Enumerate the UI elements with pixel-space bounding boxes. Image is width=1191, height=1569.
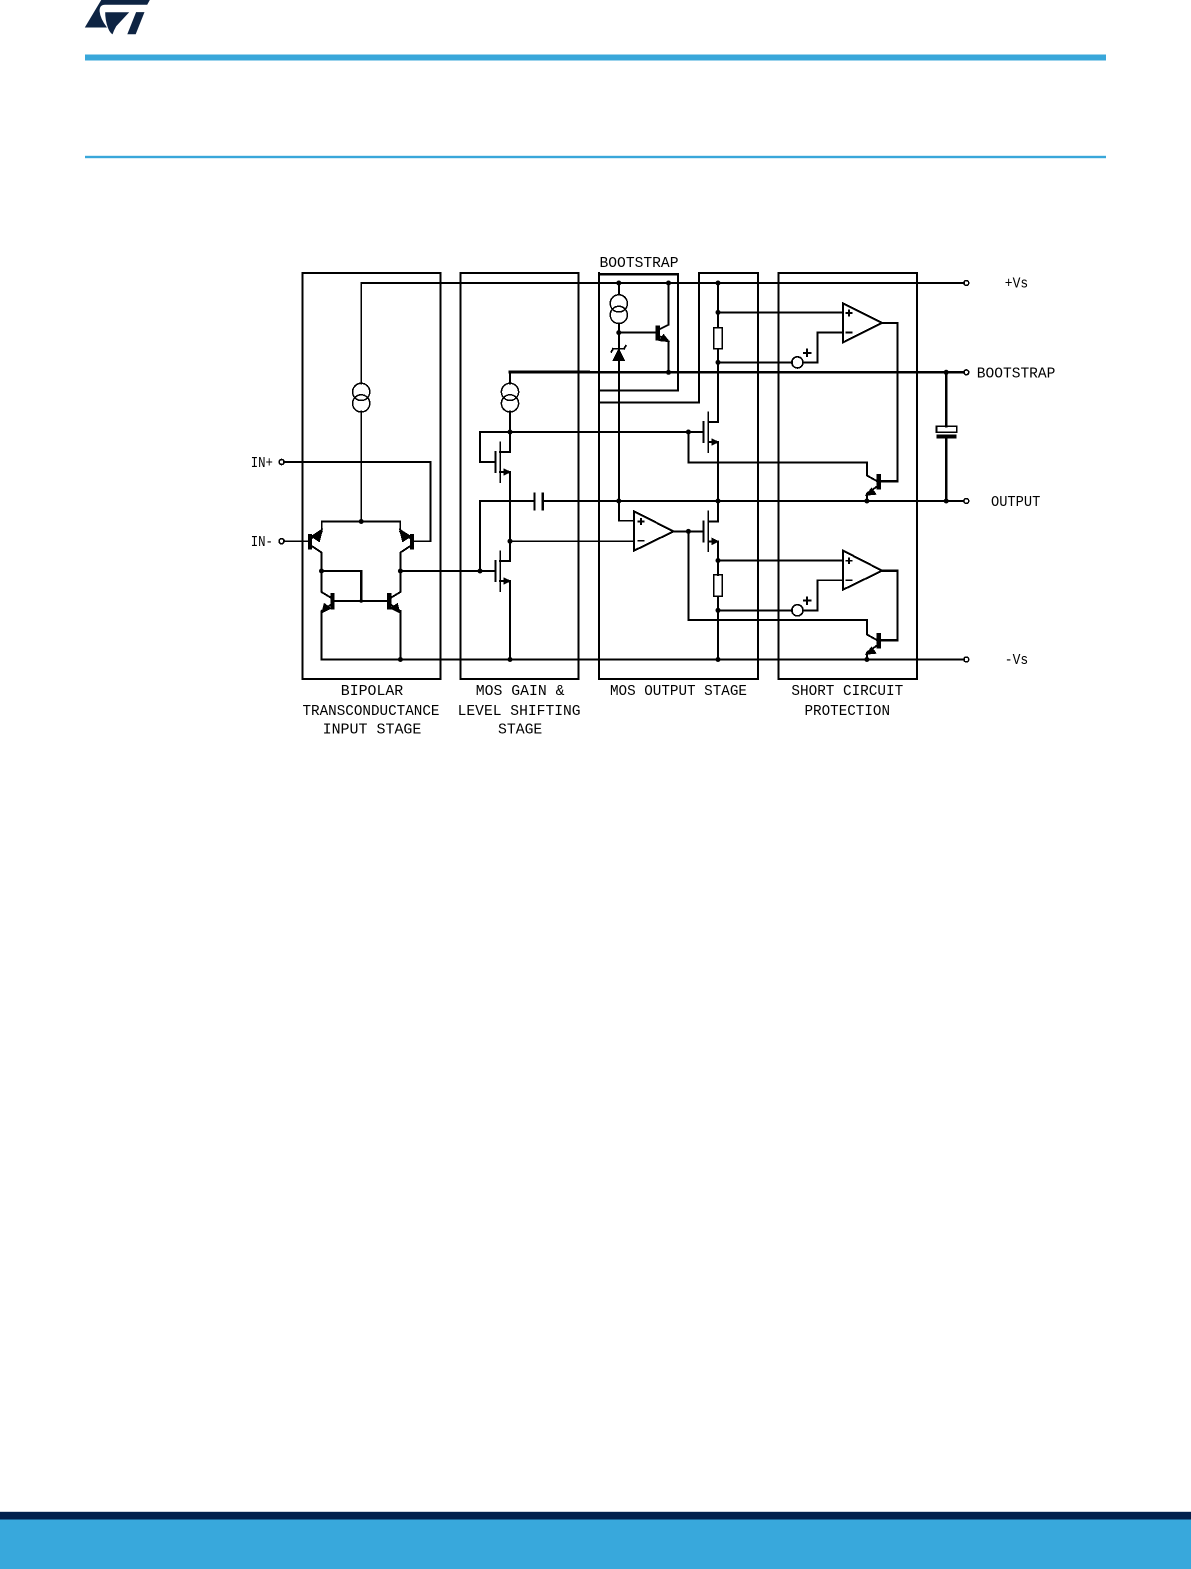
svg-text:BIPOLAR: BIPOLAR	[341, 684, 404, 700]
svg-text:IN+: IN+	[251, 456, 273, 472]
svg-text:PROTECTION: PROTECTION	[805, 704, 891, 720]
svg-text:-Vs: -Vs	[1005, 653, 1028, 669]
svg-text:INPUT STAGE: INPUT STAGE	[323, 723, 422, 739]
svg-text:BOOTSTRAP: BOOTSTRAP	[600, 256, 679, 272]
svg-text:OUTPUT: OUTPUT	[991, 495, 1041, 511]
svg-text:STAGE: STAGE	[498, 723, 542, 739]
svg-text:+Vs: +Vs	[1005, 277, 1028, 293]
svg-text:BOOTSTRAP: BOOTSTRAP	[977, 367, 1056, 383]
svg-text:LEVEL SHIFTING: LEVEL SHIFTING	[458, 704, 581, 720]
svg-text:SHORT CIRCUIT: SHORT CIRCUIT	[791, 684, 903, 700]
svg-text:IN-: IN-	[251, 535, 273, 551]
svg-text:MOS GAIN &: MOS GAIN &	[476, 684, 565, 700]
svg-text:MOS OUTPUT STAGE: MOS OUTPUT STAGE	[610, 684, 747, 700]
svg-text:TRANSCONDUCTANCE: TRANSCONDUCTANCE	[303, 704, 440, 720]
